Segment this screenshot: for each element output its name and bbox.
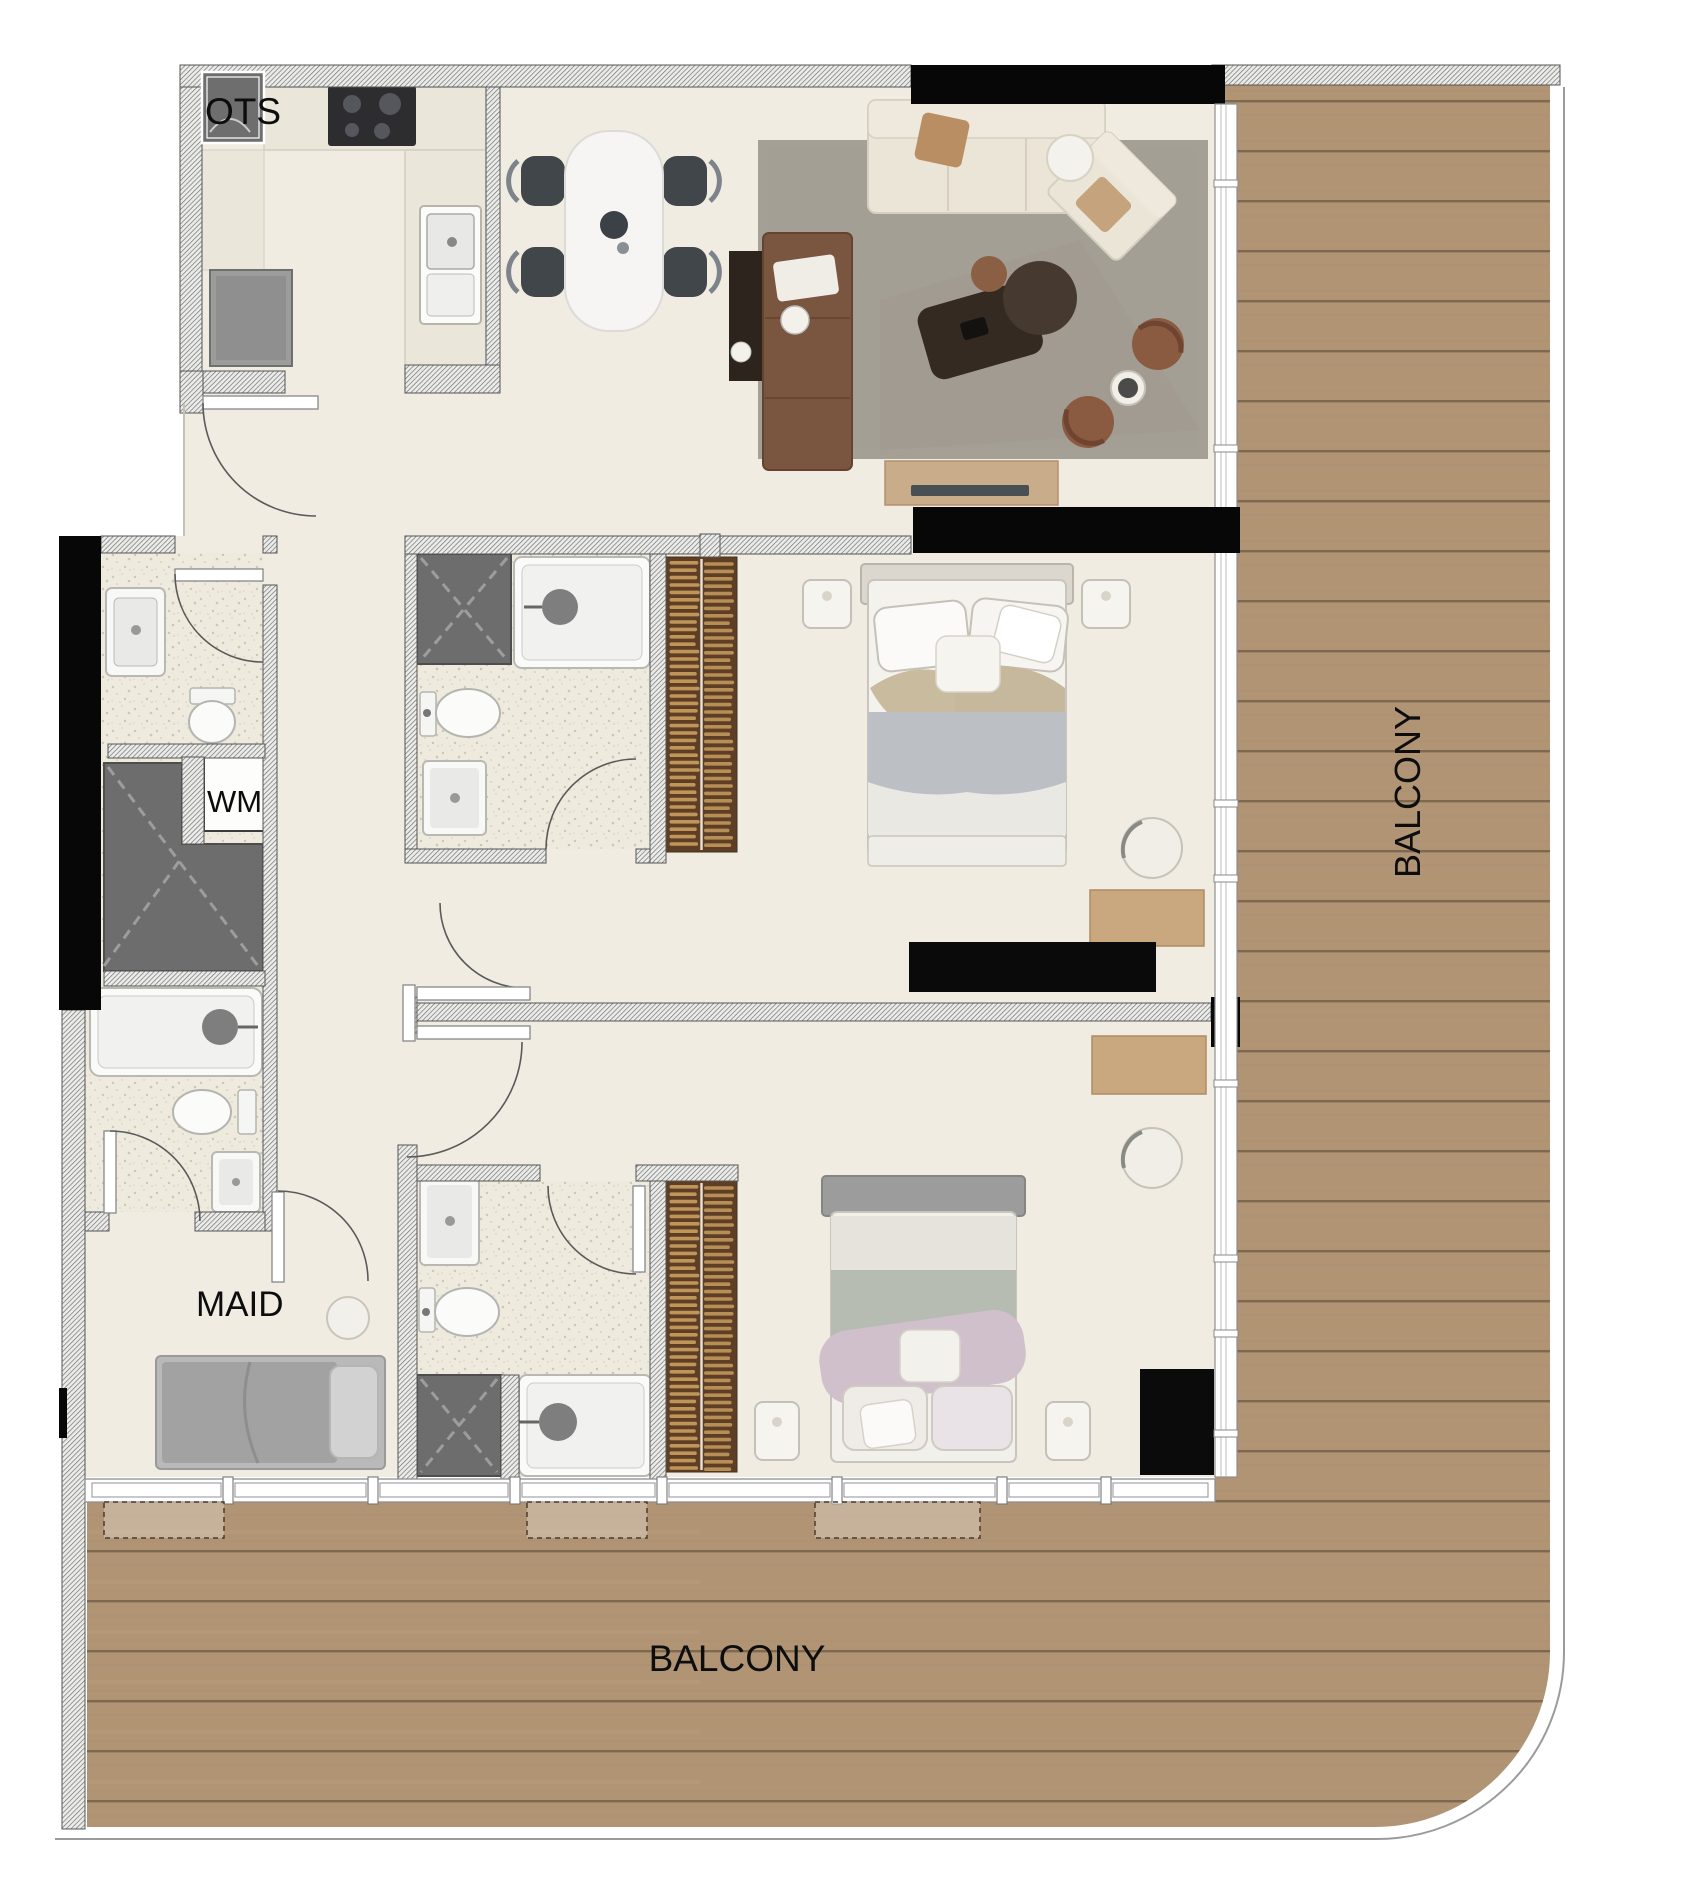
svg-text:BALCONY: BALCONY [1387, 706, 1428, 878]
svg-text:WM: WM [207, 784, 262, 819]
svg-text:MAID: MAID [196, 1285, 284, 1324]
svg-text:OTS: OTS [205, 91, 281, 132]
svg-text:BALCONY: BALCONY [649, 1638, 826, 1679]
